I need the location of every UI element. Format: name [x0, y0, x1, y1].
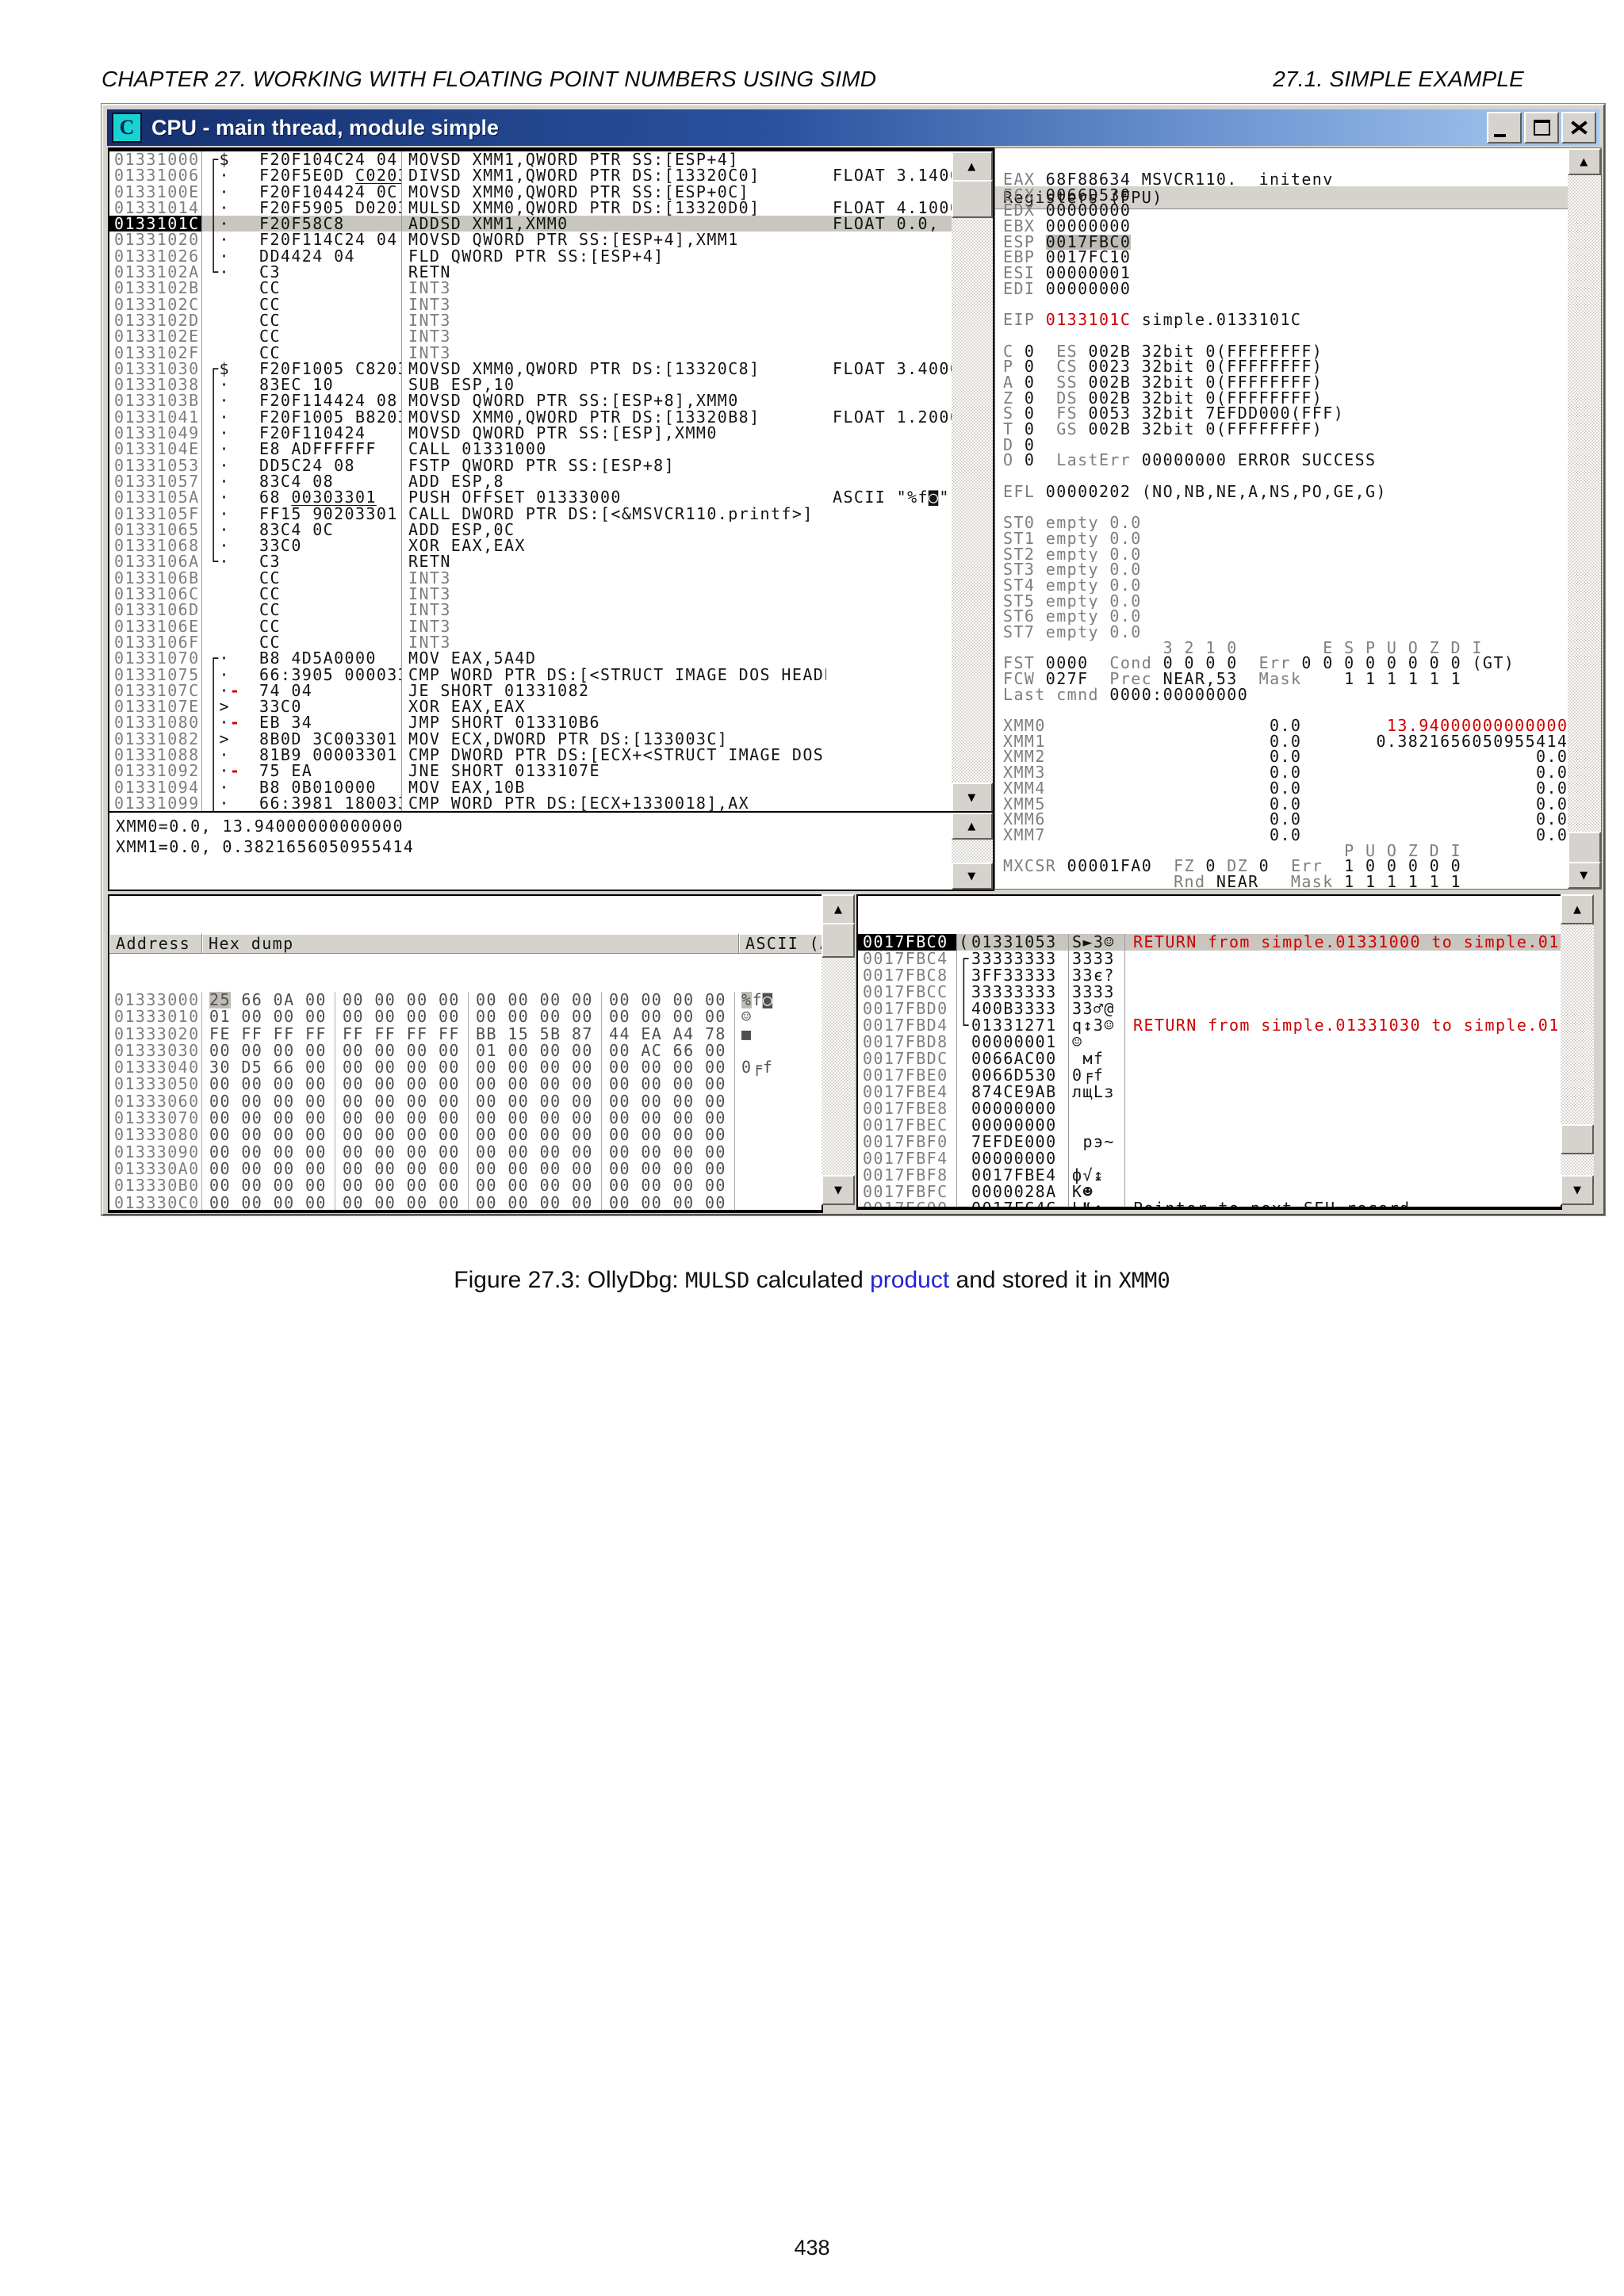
register-segment: NEAR,53: [1163, 672, 1259, 687]
disasm-bytes-cell: └·C3: [202, 264, 402, 280]
disasm-instruction: INT3: [402, 345, 826, 361]
byte-string: CC: [259, 297, 281, 312]
stack-row[interactable]: 0017FBE800000000: [858, 1100, 1561, 1117]
stack-value-cell: 0000028A: [957, 1184, 1069, 1200]
disasm-bytes-cell: └·C3: [202, 553, 402, 569]
disasm-comment: [826, 779, 952, 795]
register-segment: 0.0 0.0: [1046, 828, 1566, 844]
register-segment: 0: [1025, 438, 1035, 453]
dump-hex-group: 00 00 00 00: [602, 992, 735, 1008]
scroll-up-icon[interactable]: ▲: [1561, 894, 1594, 924]
register-segment: 0066D530: [1046, 188, 1132, 204]
scroll-thumb[interactable]: [1568, 832, 1601, 863]
register-line[interactable]: [1003, 297, 1566, 313]
disasm-row[interactable]: 01331006│·F20F5E0D C0203301DIVSD XMM1,QW…: [109, 167, 952, 183]
register-line[interactable]: Rnd NEAR Mask 1 1 1 1 1 1: [1003, 874, 1566, 889]
byte-string: F20F110424: [259, 425, 366, 441]
stack-value: 874CE9AB: [971, 1084, 1057, 1100]
dump-hex-group: 00 00 00 00: [335, 1008, 469, 1025]
disasm-row[interactable]: 0133107C│·-74 04JE SHORT 01331082: [109, 683, 952, 698]
dump-row[interactable]: 01333020FE FF FF FFFF FF FF FFBB 15 5B 8…: [109, 1026, 822, 1043]
disasm-bytes-cell: │·-74 04: [202, 683, 402, 698]
dump-row[interactable]: 013330C000 00 00 0000 00 00 0000 00 00 0…: [109, 1195, 822, 1211]
dump-hex-group: 00 00 00 00: [602, 1161, 735, 1177]
register-line[interactable]: FCW 027F Prec NEAR,53 Mask 1 1 1 1 1 1: [1003, 672, 1566, 687]
register-segment: 0053 32bit 7EFDD000(FFF): [1089, 406, 1345, 422]
scroll-down-icon[interactable]: ▼: [822, 1175, 855, 1205]
app-icon: C: [112, 113, 142, 143]
register-line[interactable]: XMM2 0.0 0.0: [1003, 749, 1566, 765]
dump-hex-group: 00 00 00 00: [469, 1076, 602, 1093]
disasm-bytes-cell: │·68 00303301: [202, 489, 402, 505]
register-segment: ST5 empty 0.0: [1003, 594, 1142, 610]
figure-caption: Figure 27.3: OllyDbg: MULSD calculated p…: [0, 1267, 1624, 1294]
disasm-row[interactable]: 0133102DCCINT3: [109, 312, 952, 328]
register-segment: SS: [1056, 375, 1088, 391]
dump-row[interactable]: 0133307000 00 00 0000 00 00 0000 00 00 0…: [109, 1110, 822, 1127]
register-segment: XMM4: [1003, 781, 1046, 797]
dump-ascii: [735, 1211, 822, 1213]
byte-string-fixup: 00003301: [312, 747, 398, 763]
disasm-instruction: CALL DWORD PTR DS:[<&MSVCR110.printf>]: [402, 506, 826, 522]
disasm-comment: [826, 634, 952, 650]
byte-string: DD4424 04: [259, 248, 355, 264]
register-segment: 002B 32bit 0(FFFFFFFF): [1089, 375, 1323, 391]
register-segment: NEAR: [1216, 874, 1291, 889]
register-line[interactable]: S 0 FS 0053 32bit 7EFDD000(FFF): [1003, 406, 1566, 422]
register-segment: 027F: [1046, 672, 1110, 687]
registers-lines: EAX 68F88634 MSVCR110.__initenvECX 0066D…: [1003, 172, 1566, 889]
stack-address: 0017FBF8: [858, 1167, 957, 1184]
disasm-row[interactable]: 0133106BCCINT3: [109, 570, 952, 586]
disasm-row[interactable]: 01331049│·F20F110424MOVSD QWORD PTR SS:[…: [109, 425, 952, 441]
disasm-row[interactable]: 01331014│·F20F5905 D0203301MULSD XMM0,QW…: [109, 200, 952, 216]
register-segment: Z: [1003, 391, 1025, 407]
stack-row[interactable]: 0017FBD0│400B333333♂@: [858, 1001, 1561, 1017]
registers-scrollbar[interactable]: ▲ ▼: [1568, 148, 1601, 889]
byte-string: CC: [259, 634, 281, 650]
register-line[interactable]: [1003, 469, 1566, 484]
register-line[interactable]: XMM7 0.0 0.0: [1003, 828, 1566, 844]
dump-hex-group: 00 00 00 00: [469, 1110, 602, 1127]
disasm-bytes-cell: │·83EC 10: [202, 377, 402, 392]
register-line[interactable]: D 0: [1003, 438, 1566, 453]
dump-ascii: [735, 1177, 822, 1194]
stack-row[interactable]: 0017FBD4└01331271q↕3☺RETURN from simple.…: [858, 1017, 1561, 1034]
disasm-address: 01331099: [109, 795, 202, 811]
register-line[interactable]: [1003, 328, 1566, 344]
dump-address: 01333080: [109, 1127, 202, 1143]
dump-hex-group: 00 00 00 00: [202, 1177, 335, 1194]
dump-hex-group: 00 00 00 00: [469, 992, 602, 1008]
disasm-row[interactable]: 01331030┌$F20F1005 C8203301MOVSD XMM0,QW…: [109, 361, 952, 377]
jump-path-marker: │·: [209, 489, 259, 505]
register-line[interactable]: Last cmnd 0000:00000000: [1003, 687, 1566, 703]
jump-path-marker: │·: [209, 232, 259, 247]
register-line[interactable]: EAX 68F88634 MSVCR110.__initenv: [1003, 172, 1566, 188]
jump-path-marker: │>: [209, 731, 259, 747]
disasm-comment: ASCII "%f◙": [826, 489, 952, 505]
maximize-icon: [1534, 120, 1550, 136]
register-segment: FZ: [1174, 859, 1205, 874]
register-segment: 002B 32bit 0(FFFFFFFF): [1089, 344, 1323, 360]
disasm-row[interactable]: 01331080│·-EB 34JMP SHORT 013310B6: [109, 714, 952, 730]
stack-address: 0017FBE8: [858, 1100, 957, 1117]
stack-row[interactable]: 0017FBEC00000000: [858, 1117, 1561, 1134]
register-line[interactable]: ST5 empty 0.0: [1003, 594, 1566, 610]
register-line[interactable]: ST0 empty 0.0: [1003, 515, 1566, 531]
disasm-bytes-cell: │·F20F1005 B8203301: [202, 409, 402, 425]
disasm-row[interactable]: 01331092│·-75 EAJNE SHORT 0133107E: [109, 763, 952, 779]
stack-ascii: лщLз: [1069, 1084, 1125, 1100]
register-line[interactable]: EBX 00000000: [1003, 219, 1566, 235]
stack-value-cell: 0017FBE4: [957, 1167, 1069, 1184]
disasm-instruction: MOVSD XMM0,QWORD PTR SS:[ESP+0C]: [402, 184, 826, 200]
dump-hex-group: 00 00 00 00: [335, 1059, 469, 1076]
disasm-row[interactable]: 01331065│·83C4 0CADD ESP,0C: [109, 522, 952, 538]
register-segment: 00000202 (NO,NB,NE,A,NS,PO,GE,G): [1046, 484, 1387, 500]
register-line[interactable]: 3 2 1 0 E S P U O Z D I: [1003, 641, 1566, 656]
disasm-bytes-cell: │·F20F114424 08: [202, 392, 402, 408]
disasm-address: 01331065: [109, 522, 202, 538]
dump-hex-group: 00 00 00 00: [202, 1110, 335, 1127]
disasm-row[interactable]: 0133105A│·68 00303301PUSH OFFSET 0133300…: [109, 489, 952, 505]
register-line[interactable]: ST2 empty 0.0: [1003, 547, 1566, 563]
dump-header-address[interactable]: Address: [109, 934, 202, 953]
stack-row[interactable]: 0017FBF07EFDE000 рэ~: [858, 1134, 1561, 1150]
stack-ascii: ф√↨: [1069, 1167, 1125, 1184]
disasm-address: 0133107C: [109, 683, 202, 698]
disasm-row[interactable]: 01331068│·33C0XOR EAX,EAX: [109, 538, 952, 553]
dump-row[interactable]: 0133304030 D5 66 0000 00 00 0000 00 00 0…: [109, 1059, 822, 1076]
dump-row[interactable]: 0133309000 00 00 0000 00 00 0000 00 00 0…: [109, 1144, 822, 1161]
dump-row[interactable]: 0133301001 00 00 0000 00 00 0000 00 00 0…: [109, 1008, 822, 1025]
register-segment: S: [1003, 406, 1025, 422]
jump-path-marker: │·: [209, 200, 259, 216]
disasm-address: 01331088: [109, 747, 202, 763]
dump-row[interactable]: 0133308000 00 00 0000 00 00 0000 00 00 0…: [109, 1127, 822, 1143]
stack-address: 0017FBEC: [858, 1117, 957, 1134]
disasm-address: 01331041: [109, 409, 202, 425]
scroll-up-icon[interactable]: ▲: [822, 894, 855, 924]
stack-value-cell: ┌33333333: [957, 951, 1069, 967]
close-button[interactable]: [1561, 112, 1596, 143]
scroll-thumb[interactable]: [822, 923, 855, 958]
caption-register: XMM0: [1119, 1269, 1170, 1293]
disasm-row[interactable]: 01331099│·66:3981 18003301CMP WORD PTR D…: [109, 795, 952, 811]
window-titlebar[interactable]: C CPU - main thread, module simple: [107, 109, 1599, 146]
dump-row[interactable]: 013330B000 00 00 0000 00 00 0000 00 00 0…: [109, 1177, 822, 1194]
minimize-button[interactable]: [1487, 112, 1522, 143]
register-line[interactable]: C 0 ES 002B 32bit 0(FFFFFFFF): [1003, 344, 1566, 360]
disasm-instruction: SUB ESP,10: [402, 377, 826, 392]
dump-row[interactable]: 0133303000 00 00 0000 00 00 0001 00 00 0…: [109, 1043, 822, 1059]
register-line[interactable]: P U O Z D I: [1003, 844, 1566, 859]
disasm-instruction: ADDSD XMM1,XMM0: [402, 216, 826, 232]
stack-ascii: [1069, 1117, 1125, 1134]
disasm-comment: [826, 570, 952, 586]
register-segment: ES: [1056, 344, 1088, 360]
scroll-thumb[interactable]: [952, 180, 993, 218]
stack-row[interactable]: 0017FBCC│333333333333: [858, 984, 1561, 1001]
dump-hex-group: 00 00 00 00: [602, 1076, 735, 1093]
dump-scrollbar[interactable]: ▲ ▼: [822, 894, 855, 1205]
register-line[interactable]: ST7 empty 0.0: [1003, 625, 1566, 641]
disasm-row[interactable]: 01331041│·F20F1005 B8203301MOVSD XMM0,QW…: [109, 409, 952, 425]
register-line[interactable]: FST 0000 Cond 0 0 0 0 Err 0 0 0 0 0 0 0 …: [1003, 656, 1566, 672]
register-segment: XMM5: [1003, 797, 1046, 813]
jump-path-marker: │·: [209, 409, 259, 425]
register-line[interactable]: EIP 0133101C simple.0133101C: [1003, 312, 1566, 328]
disassembly-rows: 01331000┌$F20F104C24 04MOVSD XMM1,QWORD …: [109, 151, 952, 813]
disasm-row[interactable]: 01331057│·83C4 08ADD ESP,8: [109, 473, 952, 489]
register-line[interactable]: XMM1 0.0 0.3821656050955414: [1003, 734, 1566, 750]
stack-row[interactable]: 0017FBFC0000028AК☻: [858, 1184, 1561, 1200]
register-line[interactable]: Z 0 DS 002B 32bit 0(FFFFFFFF): [1003, 391, 1566, 407]
disasm-scrollbar[interactable]: ▲ ▼: [952, 151, 993, 813]
stack-row[interactable]: 0017FBD800000001☺: [858, 1034, 1561, 1050]
byte-string: F20F1005: [259, 361, 355, 377]
register-segment: LastErr: [1056, 453, 1142, 469]
register-line[interactable]: XMM0 0.0 13.94000000000000: [1003, 718, 1566, 734]
register-line[interactable]: XMM4 0.0 0.0: [1003, 781, 1566, 797]
scroll-up-icon[interactable]: ▲: [1568, 148, 1601, 175]
jump-path-marker: │·: [209, 667, 259, 683]
disasm-row[interactable]: 0133106CCCINT3: [109, 586, 952, 602]
stack-value: 33333333: [971, 951, 1057, 967]
stack-row[interactable]: 0017FBDC0066AC00 мf: [858, 1050, 1561, 1067]
stack-row[interactable]: 0017FBC4┌333333333333: [858, 951, 1561, 967]
register-line[interactable]: O 0 LastErr 00000000 ERROR_SUCCESS: [1003, 453, 1566, 469]
stack-comment: [1125, 1134, 1561, 1150]
register-line[interactable]: ST3 empty 0.0: [1003, 562, 1566, 578]
disasm-comment: [826, 747, 952, 763]
register-line[interactable]: ST6 empty 0.0: [1003, 609, 1566, 625]
stack-row[interactable]: 0017FBC0(01331053S►3☺RETURN from simple.…: [858, 934, 1561, 951]
register-segment: D: [1003, 438, 1025, 453]
disasm-address: 01331057: [109, 473, 202, 489]
disasm-address: 01331080: [109, 714, 202, 730]
stack-row[interactable]: 0017FBE00066D5300╒f: [858, 1067, 1561, 1084]
disasm-row[interactable]: 01331088│·81B9 00003301CMP DWORD PTR DS:…: [109, 747, 952, 763]
dump-ascii: ☺: [735, 1008, 822, 1025]
stack-value: 0066AC00: [971, 1050, 1057, 1067]
disasm-row[interactable]: 0133107E│>33C0XOR EAX,EAX: [109, 698, 952, 714]
dump-hex-group: 00 00 00 00: [202, 1161, 335, 1177]
disasm-row[interactable]: 0133106FCCINT3: [109, 634, 952, 650]
scroll-up-icon[interactable]: ▲: [952, 151, 993, 182]
disasm-instruction: MOVSD XMM1,QWORD PTR SS:[ESP+4]: [402, 151, 826, 167]
stack-row[interactable]: 0017FBF400000000: [858, 1150, 1561, 1167]
jump-path-marker: │·: [209, 216, 259, 232]
register-segment: EIP: [1003, 312, 1046, 328]
dump-row[interactable]: 013330D000 00 00 0000 00 00 0000 00 00 0…: [109, 1211, 822, 1213]
stack-ascii: q↕3☺: [1069, 1017, 1125, 1034]
register-segment: DS: [1056, 391, 1088, 407]
disasm-bytes-cell: CC: [202, 634, 402, 650]
disasm-row[interactable]: 01331000┌$F20F104C24 04MOVSD XMM1,QWORD …: [109, 151, 952, 167]
dump-hex-group: FE FF FF FF: [202, 1026, 335, 1043]
disasm-row[interactable]: 01331075│·66:3905 00003301CMP WORD PTR D…: [109, 667, 952, 683]
register-line[interactable]: XMM6 0.0 0.0: [1003, 812, 1566, 828]
register-segment: EFL: [1003, 484, 1046, 500]
dump-row[interactable]: 013330A000 00 00 0000 00 00 0000 00 00 0…: [109, 1161, 822, 1177]
dump-hex-group: 00 00 00 00: [602, 1177, 735, 1194]
register-line[interactable]: XMM5 0.0 0.0: [1003, 797, 1566, 813]
disasm-row[interactable]: 0133105F│·FF15 90203301CALL DWORD PTR DS…: [109, 506, 952, 522]
stack-row[interactable]: 0017FBC8│3FF3333333є?: [858, 967, 1561, 984]
disasm-comment: [826, 280, 952, 296]
disasm-row[interactable]: 01331094│·B8 0B010000MOV EAX,10B: [109, 779, 952, 795]
register-line[interactable]: P 0 CS 0023 32bit 0(FFFFFFFF): [1003, 359, 1566, 375]
stack-value: 0000028A: [971, 1184, 1057, 1200]
byte-string-fixup: D0203301: [355, 200, 402, 216]
register-segment: 0: [1025, 344, 1056, 360]
register-segment: 0: [1205, 859, 1227, 874]
disasm-address: 01331014: [109, 200, 202, 216]
disasm-address: 01331026: [109, 248, 202, 264]
register-line[interactable]: [1003, 499, 1566, 515]
disasm-bytes-cell: CC: [202, 280, 402, 296]
register-line[interactable]: ESP 0017FBC0: [1003, 235, 1566, 251]
disasm-instruction: XOR EAX,EAX: [402, 698, 826, 714]
register-line[interactable]: EDX 00000000: [1003, 203, 1566, 219]
stack-row[interactable]: 0017FBE4874CE9ABлщLз: [858, 1084, 1561, 1100]
dump-row[interactable]: 0133300025 66 0A 0000 00 00 0000 00 00 0…: [109, 992, 822, 1008]
dump-row[interactable]: 0133305000 00 00 0000 00 00 0000 00 00 0…: [109, 1076, 822, 1093]
stack-ascii: 3333: [1069, 984, 1125, 1001]
register-line[interactable]: T 0 GS 002B 32bit 0(FFFFFFFF): [1003, 422, 1566, 438]
disasm-comment: [826, 377, 952, 392]
scroll-down-icon[interactable]: ▼: [952, 783, 993, 813]
disasm-bytes-cell: ┌$F20F104C24 04: [202, 151, 402, 167]
jump-path-marker: │·: [209, 248, 259, 264]
disasm-row[interactable]: 01331026│·DD4424 04FLD QWORD PTR SS:[ESP…: [109, 248, 952, 264]
register-line[interactable]: MXCSR 00001FA0 FZ 0 DZ 0 Err 1 0 0 0 0 0: [1003, 859, 1566, 874]
stack-value-cell: │33333333: [957, 984, 1069, 1001]
info-line: XMM0=0.0, 13.94000000000000: [116, 816, 950, 836]
register-segment: 0023 32bit 0(FFFFFFFF): [1089, 359, 1323, 375]
stack-scrollbar[interactable]: ▲ ▼: [1561, 894, 1594, 1205]
info-scrollbar[interactable]: ▲ ▼: [952, 813, 993, 890]
byte-string: F20F5905: [259, 200, 355, 216]
register-segment: 00000000: [1046, 203, 1132, 219]
dump-hex-group: 25 66 0A 00: [202, 992, 335, 1008]
disasm-comment: FLOAT 4.100000000000000: [826, 200, 952, 216]
scroll-thumb[interactable]: [1561, 1124, 1594, 1154]
disasm-instruction: MOV EAX,5A4D: [402, 650, 826, 666]
jump-path-marker: │·: [209, 473, 259, 489]
disasm-row[interactable]: 0133102CCCINT3: [109, 297, 952, 312]
disasm-address: 0133105A: [109, 489, 202, 505]
ollydbg-window: C CPU - main thread, module simple 01331…: [101, 104, 1605, 1215]
stack-row[interactable]: 0017FBF80017FBE4ф√↨: [858, 1167, 1561, 1184]
disasm-row[interactable]: 0133103B│·F20F114424 08MOVSD QWORD PTR S…: [109, 392, 952, 408]
byte-string: CC: [259, 345, 281, 361]
scroll-up-icon[interactable]: ▲: [952, 813, 993, 840]
selected-byte: 25: [209, 992, 231, 1008]
scroll-down-icon[interactable]: ▼: [1568, 862, 1601, 889]
disasm-row[interactable]: 01331053│·DD5C24 08FSTP QWORD PTR SS:[ES…: [109, 457, 952, 473]
register-line[interactable]: ECX 0066D530: [1003, 188, 1566, 204]
disasm-row[interactable]: 0133104E│·E8 ADFFFFFFCALL 01331000: [109, 441, 952, 457]
stack-row[interactable]: 0017FC000017FC4CL№↨Pointer to next SEH r…: [858, 1200, 1561, 1210]
register-segment: 0133101C: [1046, 312, 1132, 328]
disasm-instruction: ADD ESP,0C: [402, 522, 826, 538]
disasm-row[interactable]: 0133102BCCINT3: [109, 280, 952, 296]
dump-hex-group: 44 EA A4 78: [602, 1026, 735, 1043]
dump-row[interactable]: 0133306000 00 00 0000 00 00 0000 00 00 0…: [109, 1093, 822, 1110]
register-segment: 00000000 ERROR_SUCCESS: [1142, 453, 1377, 469]
disasm-row[interactable]: 0133100E│·F20F104424 0CMOVSD XMM0,QWORD …: [109, 184, 952, 200]
disasm-address: 0133106E: [109, 618, 202, 634]
disasm-instruction: MOVSD QWORD PTR SS:[ESP+8],XMM0: [402, 392, 826, 408]
register-line[interactable]: ESI 00000001: [1003, 266, 1566, 281]
register-segment: 0.0 0.0: [1046, 765, 1566, 781]
disasm-row[interactable]: 0133101C│·F20F58C8ADDSD XMM1,XMM0FLOAT 0…: [109, 216, 952, 232]
disasm-address: 01331092: [109, 763, 202, 779]
register-line[interactable]: EFL 00000202 (NO,NB,NE,A,NS,PO,GE,G): [1003, 484, 1566, 500]
dump-header-ascii[interactable]: ASCII (ANSI: [739, 934, 822, 953]
register-line[interactable]: EDI 00000000: [1003, 281, 1566, 297]
disasm-instruction: RETN: [402, 553, 826, 569]
disasm-row[interactable]: 01331082│>8B0D 3C003301MOV ECX,DWORD PTR…: [109, 731, 952, 747]
disasm-instruction: CMP DWORD PTR DS:[ECX+<STRUCT IMAGE_DOS_…: [402, 747, 826, 763]
dump-address: 01333070: [109, 1110, 202, 1127]
dump-hex-group: 00 00 00 00: [602, 1127, 735, 1143]
disasm-row[interactable]: 0133106DCCINT3: [109, 602, 952, 618]
stack-value-cell: 7EFDE000: [957, 1134, 1069, 1150]
disasm-row[interactable]: 01331038│·83EC 10SUB ESP,10: [109, 377, 952, 392]
register-segment: 0: [1025, 422, 1056, 438]
disasm-address: 01331053: [109, 457, 202, 473]
disasm-row[interactable]: 0133106A└·C3RETN: [109, 553, 952, 569]
disasm-row[interactable]: 0133102A└·C3RETN: [109, 264, 952, 280]
disasm-comment: [826, 312, 952, 328]
register-line[interactable]: ST4 empty 0.0: [1003, 578, 1566, 594]
minimize-icon: [1494, 134, 1506, 137]
dump-address: 01333000: [109, 992, 202, 1008]
dump-header-hex[interactable]: Hex dump: [202, 934, 739, 953]
register-line[interactable]: XMM3 0.0 0.0: [1003, 765, 1566, 781]
register-segment: ST7 empty 0.0: [1003, 625, 1142, 641]
disasm-row[interactable]: 0133102ECCINT3: [109, 328, 952, 344]
register-segment: 002B 32bit 0(FFFFFFFF): [1089, 422, 1323, 438]
scroll-down-icon[interactable]: ▼: [952, 863, 993, 890]
register-line[interactable]: ST1 empty 0.0: [1003, 531, 1566, 547]
byte-string: 68: [259, 489, 291, 505]
disasm-instruction: CMP WORD PTR DS:[ECX+1330018],AX: [402, 795, 826, 811]
dump-hex-group: 00 00 00 00: [602, 1093, 735, 1110]
disasm-row[interactable]: 01331070┌·B8 4D5A0000MOV EAX,5A4D: [109, 650, 952, 666]
scroll-down-icon[interactable]: ▼: [1561, 1175, 1594, 1205]
disasm-address: 0133106B: [109, 570, 202, 586]
disasm-comment: [826, 232, 952, 247]
disasm-row[interactable]: 0133102FCCINT3: [109, 345, 952, 361]
register-segment: Cond: [1109, 656, 1162, 672]
register-line[interactable]: [1003, 702, 1566, 718]
disasm-comment: [826, 151, 952, 167]
stack-comment: [1125, 1034, 1561, 1050]
disasm-row[interactable]: 0133106ECCINT3: [109, 618, 952, 634]
disasm-address: 0133102B: [109, 280, 202, 296]
disasm-instruction: MULSD XMM0,QWORD PTR DS:[13320D0]: [402, 200, 826, 216]
disasm-row[interactable]: 01331020│·F20F114C24 04MOVSD QWORD PTR S…: [109, 232, 952, 247]
register-line[interactable]: A 0 SS 002B 32bit 0(FFFFFFFF): [1003, 375, 1566, 391]
register-line[interactable]: EBP 0017FC10: [1003, 250, 1566, 266]
caption-link[interactable]: product: [870, 1267, 949, 1293]
maximize-button[interactable]: [1524, 112, 1559, 143]
